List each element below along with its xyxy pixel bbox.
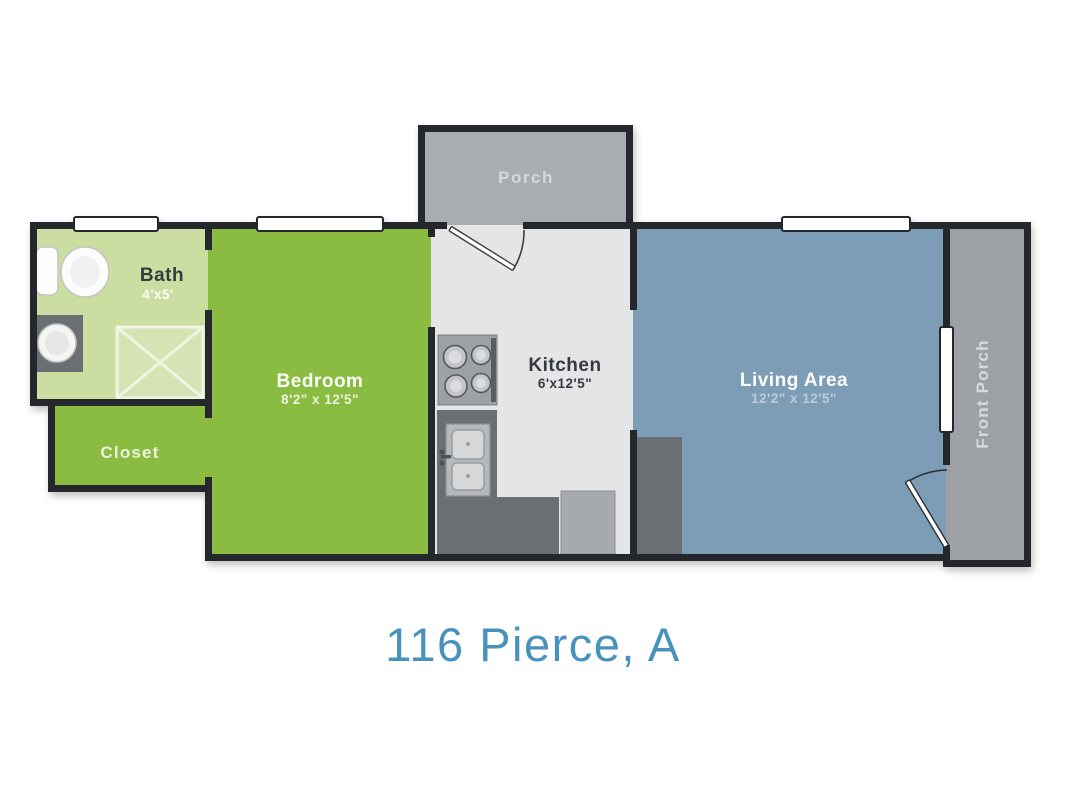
wall	[630, 430, 637, 561]
window-icon	[782, 217, 910, 231]
closet-label: Closet	[100, 443, 159, 462]
kitchen-counter-bottom	[437, 497, 559, 554]
wall	[630, 222, 637, 310]
toilet-icon	[36, 247, 109, 297]
floor-plan-canvas: Porch Bath 4'x5' Closet Bedroom 8'2" x 1…	[0, 0, 1067, 800]
front-porch-label: Front Porch	[973, 339, 992, 449]
shower-icon	[117, 327, 203, 398]
wall	[428, 327, 435, 561]
wall	[418, 125, 425, 225]
utility-block	[637, 437, 682, 554]
appliance-square	[561, 491, 615, 554]
bath-sink-icon	[32, 315, 83, 372]
floor-plan-page: Porch Bath 4'x5' Closet Bedroom 8'2" x 1…	[0, 0, 1067, 800]
wall	[626, 125, 633, 225]
stove-icon	[438, 335, 497, 405]
window-icon	[940, 327, 953, 432]
wall	[48, 485, 212, 492]
plan-title: 116 Pierce, A	[385, 618, 681, 671]
porch-label: Porch	[498, 168, 554, 187]
wall	[30, 399, 212, 406]
living-area-label: Living Area	[740, 370, 848, 391]
wall	[205, 310, 212, 418]
bath-label: Bath	[140, 265, 184, 286]
bath-dims: 4'x5'	[142, 287, 173, 302]
bedroom-dims: 8'2" x 12'5"	[281, 392, 359, 407]
wall	[943, 560, 1031, 567]
wall	[1024, 222, 1031, 567]
kitchen-label: Kitchen	[528, 355, 601, 376]
wall	[523, 222, 1031, 229]
wall	[30, 222, 37, 406]
wall	[205, 554, 950, 561]
window-icon	[257, 217, 383, 231]
kitchen-sink-icon	[439, 424, 490, 496]
wall	[428, 222, 435, 237]
kitchen-dims: 6'x12'5"	[538, 376, 592, 391]
wall	[205, 222, 212, 250]
window-icon	[74, 217, 158, 231]
wall	[48, 399, 55, 492]
wall	[205, 477, 212, 561]
wall	[418, 125, 633, 132]
living-area-dims: 12'2" x 12'5"	[751, 391, 837, 406]
bedroom-label: Bedroom	[277, 371, 364, 392]
floor-plan	[30, 125, 1031, 567]
